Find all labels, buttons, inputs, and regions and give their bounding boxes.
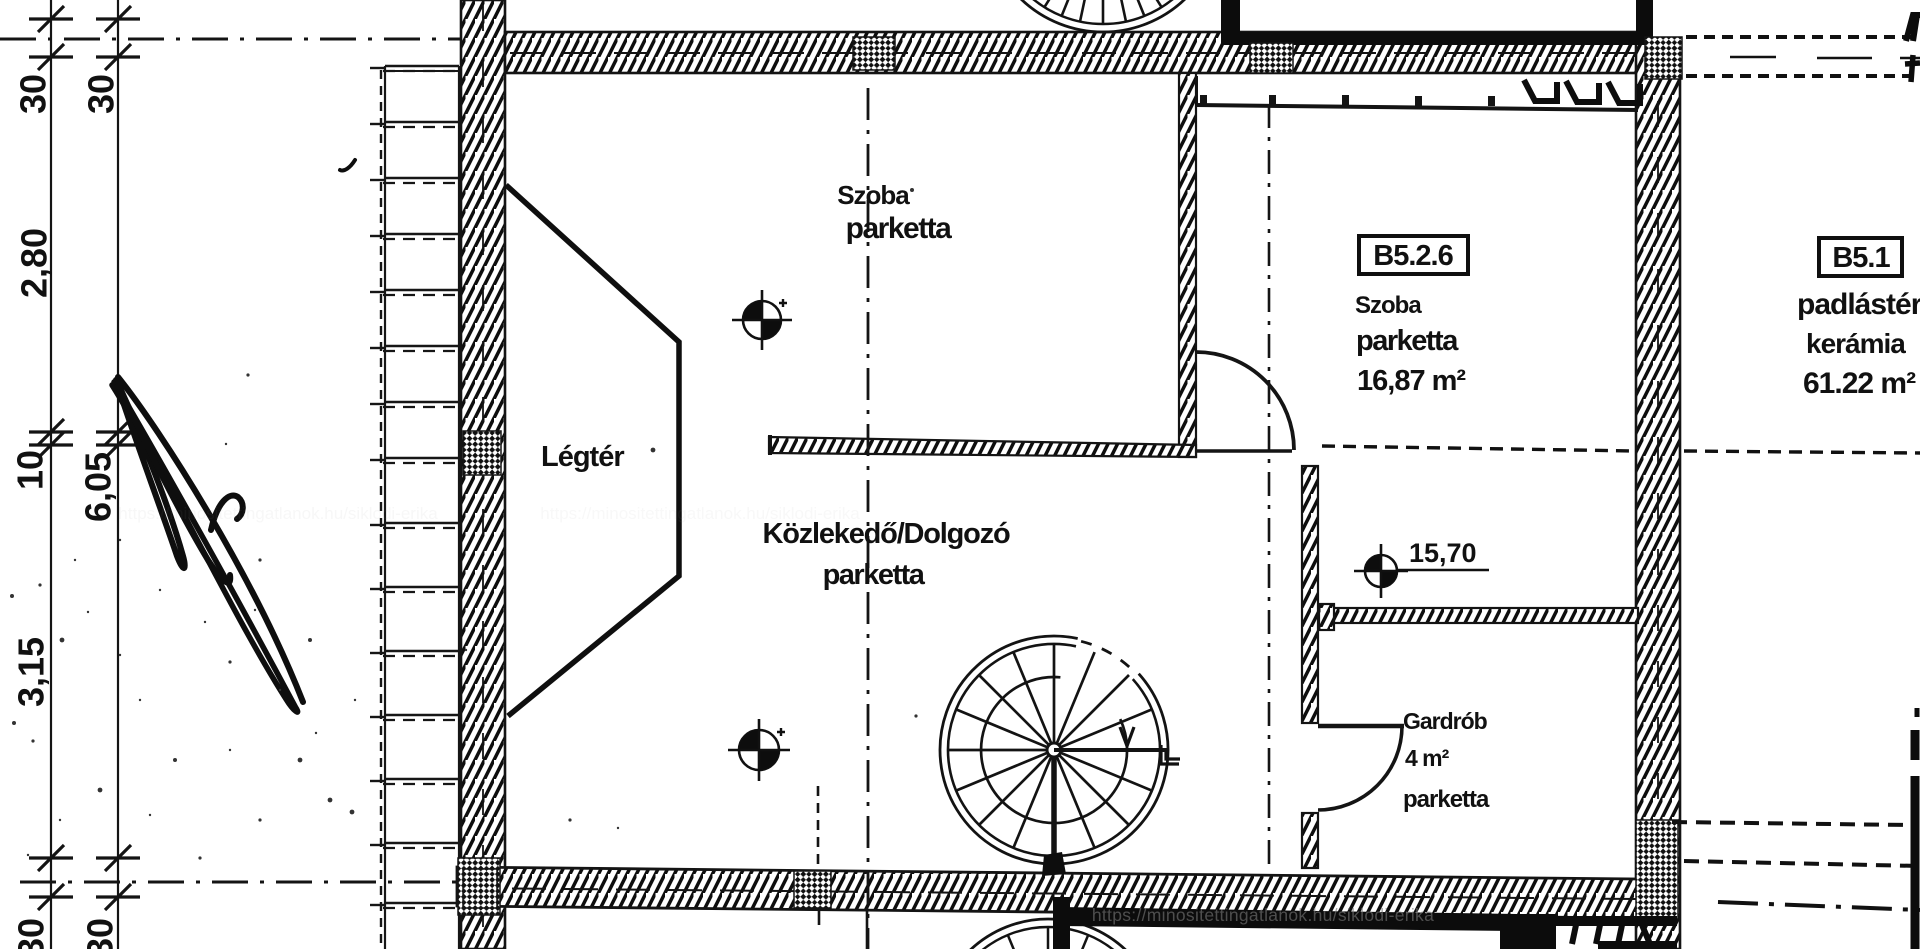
svg-text:https://minositettingatlanok.h: https://minositettingatlanok.hu/siklodi-… [540,504,860,523]
svg-text:parketta: parketta [823,559,926,591]
svg-text:padlástér: padlástér [1797,288,1920,321]
svg-text:parketta: parketta [846,212,953,245]
svg-text:30: 30 [80,918,121,949]
svg-text:parketta: parketta [1403,786,1490,813]
svg-text:16,87 m²: 16,87 m² [1357,365,1466,397]
svg-text:B5.2.6: B5.2.6 [1373,240,1453,272]
svg-text:30: 30 [81,74,122,114]
svg-text:2,80: 2,80 [14,228,55,298]
svg-text:Gardrób: Gardrób [1403,708,1488,734]
svg-text:3,15: 3,15 [11,637,52,707]
svg-text:Szoba: Szoba [1355,292,1422,319]
svg-text:30: 30 [13,74,54,114]
svg-text:Szoba: Szoba [837,180,910,210]
svg-text:61.22 m²: 61.22 m² [1803,367,1916,400]
svg-text:Légtér: Légtér [541,441,624,473]
svg-text:https://minositettingatlanok.h: https://minositettingatlanok.hu/siklodi-… [1092,905,1434,925]
svg-text:6,05: 6,05 [78,452,119,522]
svg-text:15,70: 15,70 [1409,538,1477,568]
svg-text:parketta: parketta [1356,325,1459,357]
svg-text:https://minositettingatlanok.h: https://minositettingatlanok.hu/siklodi-… [118,504,438,523]
svg-text:30: 30 [11,918,52,949]
svg-text:10: 10 [10,450,51,490]
svg-text:4 m²: 4 m² [1405,745,1450,771]
svg-text:kerámia: kerámia [1806,328,1906,359]
svg-text:B5.1: B5.1 [1832,242,1890,274]
